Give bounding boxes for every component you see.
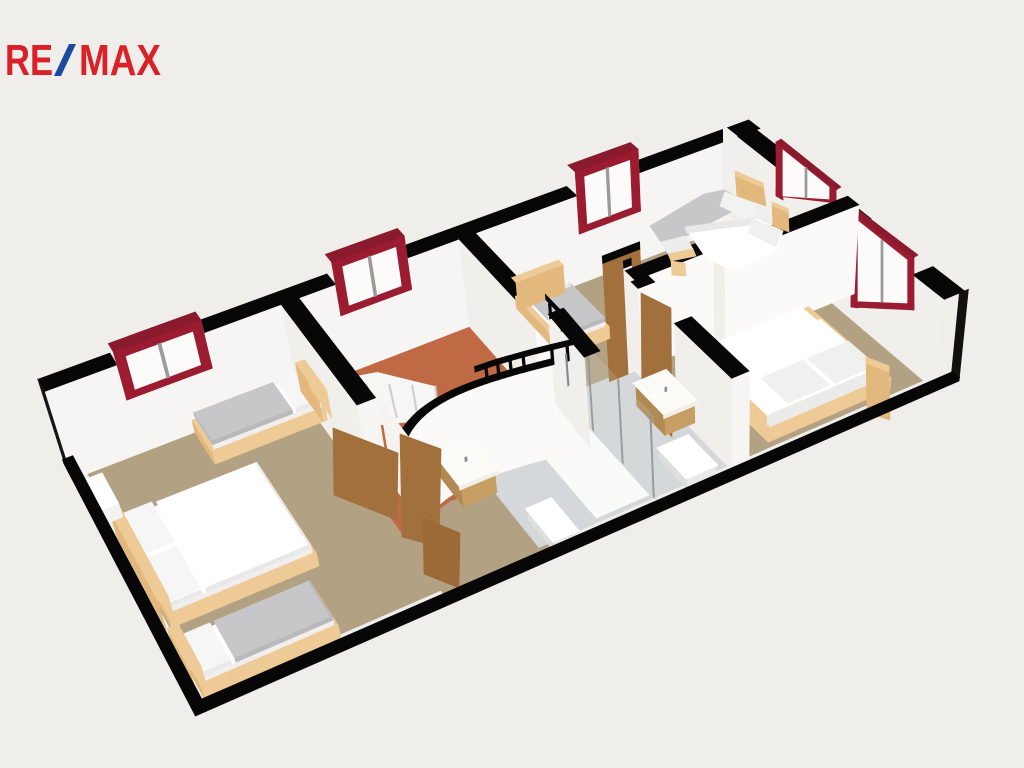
svg-text:MAX: MAX bbox=[79, 36, 161, 85]
svg-text:RE: RE bbox=[5, 36, 53, 85]
